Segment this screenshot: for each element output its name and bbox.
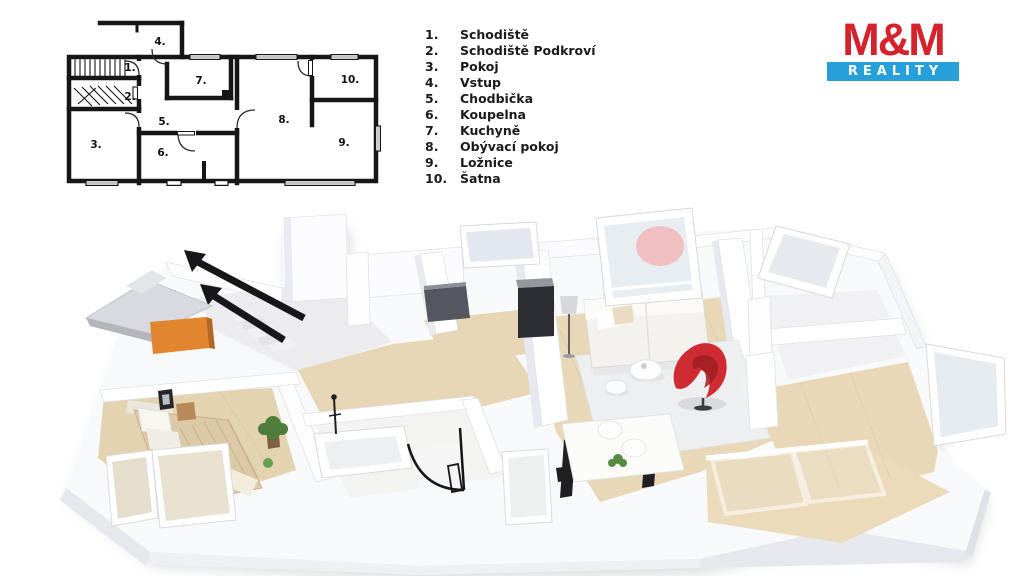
legend-item-8: 8.Obývací pokoj (425, 139, 596, 155)
nightstand (176, 402, 196, 421)
table-lamp (598, 421, 622, 439)
coffee-table (630, 360, 662, 380)
door-leaf (346, 252, 370, 326)
legend-item-3: 3.Pokoj (425, 59, 596, 75)
bottom-center-window (502, 449, 552, 525)
page: 1. 2. 3. 4. 5. 6. 7. 8. 9. 10. 1.Schodiš… (0, 0, 1024, 576)
legend-item-5: 5.Chodbička (425, 91, 596, 107)
room-label-6: 6. (157, 147, 168, 159)
room-label-7: 7. (195, 75, 206, 87)
legend-item-10: 10.Šatna (425, 171, 596, 187)
kitchen-window (460, 222, 540, 268)
side-table (605, 380, 627, 394)
room-label-2: 2. (124, 91, 135, 103)
bedroom3-terrace-doors (106, 443, 236, 528)
living-window (596, 208, 702, 306)
room-label-10: 10. (341, 74, 360, 86)
stairs-hatching (74, 60, 132, 107)
room-label-8: 8. (278, 114, 289, 126)
floorplan-3d (40, 205, 1024, 576)
floorplan-2d: 1. 2. 3. 4. 5. 6. 7. 8. 9. 10. (60, 8, 390, 198)
legend-item-2: 2.Schodiště Podkroví (425, 43, 596, 59)
room-label-3: 3. (90, 139, 101, 151)
plant-ball (263, 458, 273, 468)
legend-item-6: 6.Koupelna (425, 107, 596, 123)
floor-lamp-shade (560, 296, 578, 314)
table-lamp (622, 439, 646, 457)
shower-tray (412, 444, 462, 488)
legend-item-7: 7.Kuchyně (425, 123, 596, 139)
room-legend: 1.Schodiště 2.Schodiště Podkroví 3.Pokoj… (425, 27, 596, 187)
legend-item-9: 9.Ložnice (425, 155, 596, 171)
room-label-4: 4. (154, 36, 165, 48)
bedroom9-side-window (926, 344, 1006, 446)
legend-item-4: 4.Vstup (425, 75, 596, 91)
fridge-unit (518, 286, 554, 338)
mm-reality-logo: M&M REALITY (827, 18, 959, 81)
room-label-5: 5. (158, 116, 169, 128)
legend-item-1: 1.Schodiště (425, 27, 596, 43)
room-label-9: 9. (338, 137, 349, 149)
room-label-1: 1. (124, 62, 135, 74)
chimney-block (222, 90, 232, 98)
sofa-pillow (612, 305, 634, 325)
logo-wordmark: M&M (827, 18, 959, 62)
